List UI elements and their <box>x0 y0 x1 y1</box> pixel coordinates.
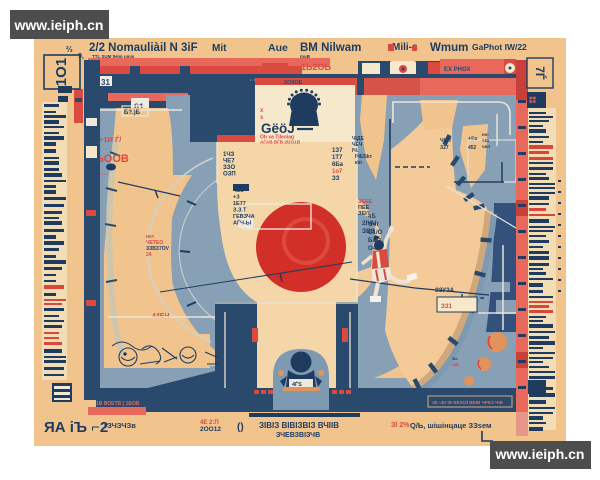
svg-text:GaPhot IW/22: GaPhot IW/22 <box>472 42 527 52</box>
svg-text:(): () <box>237 422 244 433</box>
svg-text:Q/Ь, шішінцаце ЗЗѕем: Q/Ь, шішінцаце ЗЗѕем <box>410 421 492 430</box>
svg-text:····: ···· <box>100 172 108 178</box>
svg-text:9,: 9, <box>78 53 84 60</box>
svg-text:BM Nilwam: BM Nilwam <box>300 42 361 54</box>
svg-text:1Т7: 1Т7 <box>332 155 343 161</box>
svg-text:но-: но- <box>482 132 489 137</box>
svg-text:1о7: 1о7 <box>332 169 343 175</box>
svg-text:+©з: +©з <box>468 135 478 142</box>
svg-text:+1И Ѓ/: +1И Ѓ/ <box>99 135 122 144</box>
svg-text:1О1: 1О1 <box>53 58 70 86</box>
svg-text:31: 31 <box>101 78 110 87</box>
svg-text:ЬООВ: ЬООВ <box>96 153 129 165</box>
svg-text:ЯА iЪ ⌐2: ЯА iЪ ⌐2 <box>44 419 108 436</box>
svg-text:ЗЇ 2%: ЗЇ 2% <box>391 421 410 429</box>
svg-text:7Ѓ: 7Ѓ <box>533 66 548 80</box>
svg-text:ОЗП: ОЗП <box>223 172 236 178</box>
svg-text:⁑⁑: ⁑⁑ <box>529 96 537 105</box>
svg-text:ЧЕ7: ЧЕ7 <box>223 159 235 165</box>
svg-text:ЗЗУЗА: ЗЗУЗА <box>435 288 455 294</box>
svg-text:ЗЗО: ЗЗО <box>223 165 235 171</box>
svg-text:ЗЧЕВЗВІЗЧВ: ЗЧЕВЗВІЗЧВ <box>276 432 320 439</box>
svg-text:АЃЧ-Ы: АЃЧ-Ы <box>233 219 252 227</box>
svg-text:4ЃЅ: 4ЃЅ <box>292 380 302 388</box>
svg-text:1ЧЗ: 1ЧЗ <box>223 152 235 158</box>
svg-text:з: з <box>260 115 263 121</box>
svg-text:ЗЗ: ЗЗ <box>332 176 340 182</box>
svg-text:зч.: зч. <box>452 356 458 361</box>
svg-text:ГЕВЗЧА: ГЕВЗЧА <box>233 214 255 220</box>
svg-text:6Ба: 6Ба <box>332 162 344 168</box>
svg-text:Мit: Мit <box>212 43 227 54</box>
svg-text:Очт: Очт <box>368 222 379 228</box>
svg-text:ЗЗ1: ЗЗ1 <box>441 304 453 310</box>
svg-text:ЕХ РНОХ: ЕХ РНОХ <box>444 67 470 73</box>
svg-text:www.ieiph.cn: www.ieiph.cn <box>14 17 104 33</box>
svg-text:т4з: т4з <box>482 138 490 143</box>
svg-text:Aue: Aue <box>268 42 288 54</box>
svg-text:гЗЧЗЧЗв: гЗЧЗЧЗв <box>104 421 136 430</box>
svg-text:ЗІВІЗ ВІВІЗВІЗ ВЧІІВ: ЗІВІЗ ВІВІЗВІЗ ВЧІІВ <box>259 421 339 430</box>
svg-text:1З7: 1З7 <box>332 148 343 154</box>
svg-text:О1/О: О1/О <box>368 230 383 236</box>
svg-text:24: 24 <box>146 252 152 258</box>
svg-text:чел: чел <box>482 144 490 149</box>
svg-text:кìп: кìп <box>355 160 362 166</box>
svg-text:З.З.Т: З.З.Т <box>233 208 247 214</box>
svg-text:ЧШТ: ЧШТ <box>440 138 452 144</box>
svg-text:+З: +З <box>233 195 240 201</box>
svg-text:АЃАВ ВЃВ 2/2О1В: АЃАВ ВЃВ 2/2О1В <box>260 138 301 145</box>
svg-text:Wmum: Wmum <box>430 42 468 54</box>
svg-text:ЗЕ чЕї ІВ ВЕЗІЗЇ ВЕВІ ЧРЕЗ ЧІВ: ЗЕ чЕї ІВ ВЕЗІЗЇ ВЕВІ ЧРЕЗ ЧІВ <box>432 399 504 405</box>
svg-text:Б?.)Б: Б?.)Б <box>124 110 141 116</box>
svg-text:452: 452 <box>468 145 477 151</box>
svg-text:www.ieiph.cn: www.ieiph.cn <box>495 446 585 462</box>
svg-text:4Б: 4Б <box>368 214 376 220</box>
svg-text:1Е77: 1Е77 <box>233 201 246 207</box>
svg-text:2/2 Nomauliàil N 3iF: 2/2 Nomauliàil N 3iF <box>89 42 198 54</box>
svg-text:ові: ові <box>452 362 459 367</box>
svg-text:⅔: ⅔ <box>66 45 73 54</box>
svg-text:1В ВОЕТВ [ 1БОВ: 1В ВОЕТВ [ 1БОВ <box>96 401 140 407</box>
svg-text:З27: З27 <box>440 145 449 151</box>
svg-text:1Ь2ОЬ: 1Ь2ОЬ <box>301 62 331 72</box>
svg-text:2ОО12: 2ОО12 <box>200 426 221 433</box>
